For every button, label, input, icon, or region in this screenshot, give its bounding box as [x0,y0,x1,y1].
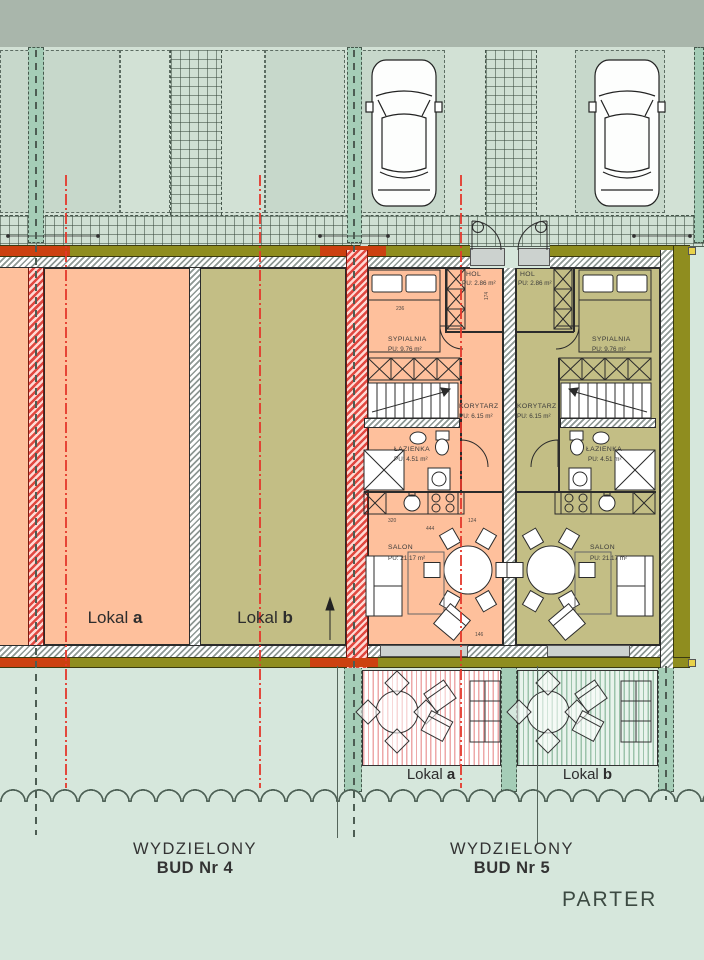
parking-stall [575,50,665,213]
party-wall-bud4-bud5 [346,250,368,668]
bud5-caption: WYDZIELONY BUD Nr 5 [432,840,592,878]
axis-line-red [259,175,261,788]
parking-aisle [120,50,170,213]
room-area-korytarz-a: PU: 6.15 m² [459,413,493,420]
bud4-caption-line1: WYDZIELONY [115,840,275,859]
bud4-lokal-b-label: Lokal b [210,608,320,628]
bud4-wall-hatch [0,257,350,268]
wall [445,331,503,333]
room-label-salon-b: SALON [590,544,615,551]
reference-line [537,666,538,843]
room-label-salon-a: SALON [388,544,413,551]
bud4-caption-line2: BUD Nr 4 [115,859,275,878]
room-label-korytarz-a: KORYTARZ [459,403,499,410]
room-area-lazienka-a: PU: 4.51 m² [394,456,428,463]
bud5-rear-wall [360,657,690,668]
room-area-hol-a: PU: 2.86 m² [462,280,496,287]
bud4-unit-divider [190,268,200,645]
bud5-wall-right [660,250,673,668]
paved-path [170,50,222,215]
page-title: PARTER [562,888,657,912]
boundary-dashed-line [353,50,355,838]
paved-path [485,50,537,215]
pergola-post [694,47,704,243]
room-area-sypialnia-b: PU: 9.76 m² [592,346,626,353]
terrace-window [547,645,630,657]
bud5-party-wall [503,268,516,645]
bud5-caption-line2: BUD Nr 5 [432,859,592,878]
bud5-lokal-a-floor [368,268,503,645]
room-area-sypialnia-a: PU: 9.76 m² [388,346,422,353]
bud4-floor-sliver [0,268,28,645]
dimension-label: 444 [426,526,434,532]
axis-line-red [65,175,67,788]
room-area-salon-a: PU: 21.17 m² [388,555,425,562]
parking-stall [358,50,445,213]
survey-point [688,659,696,667]
room-area-korytarz-b: PU: 6.15 m² [517,413,551,420]
terrace-lokal-b-label: Lokal b [520,766,655,783]
room-area-lazienka-b: PU: 4.51 m² [588,456,622,463]
dimension-label: 124 [468,518,476,524]
room-label-hol-b: HOL [520,271,535,278]
terrace-deck-b [517,670,658,766]
pergola-post [347,47,362,243]
room-area-hol-b: PU: 2.86 m² [518,280,552,287]
room-label-sypialnia-b: SYPIALNIA [592,336,631,343]
wall [516,331,574,333]
bud5-wall-hatch [368,257,470,268]
terrace-window [380,645,468,657]
survey-point [688,247,696,255]
room-label-korytarz-b: KORYTARZ [517,403,557,410]
boundary-dashed-line [35,50,37,835]
wall [364,491,503,493]
boundary-dashed-line [665,666,667,800]
street-band [0,0,704,48]
floor-plan-drawing: Lokal a Lokal b HOL PU: 2.86 m² SYPIALNI… [0,0,704,960]
dimension-label: 236 [396,306,404,312]
room-label-lazienka-b: ŁAZIENKA [586,446,622,453]
parking-stall [0,50,120,213]
wall [573,268,575,332]
wall [445,268,447,332]
wall-hatch [364,418,460,428]
dimension-label: 174 [484,292,490,300]
room-area-salon-b: PU: 21.17 m² [590,555,627,562]
terrace-deck-a [362,670,501,766]
bud4-lokal-a-label: Lokal a [60,608,170,628]
entry-threshold [518,248,550,266]
terrace-lokal-a-label: Lokal a [366,766,496,783]
dimension-label: 320 [388,518,396,524]
room-label-sypialnia-a: SYPIALNIA [388,336,427,343]
reference-line [337,666,338,838]
entry-threshold [470,248,505,266]
wall-hatch [560,418,656,428]
dimension-label: 146 [475,632,483,638]
terrace-post [501,666,517,792]
bud5-outer-wall-right [673,245,690,668]
room-label-lazienka-a: ŁAZIENKA [394,446,430,453]
axis-line-red [460,175,462,788]
bud4-caption: WYDZIELONY BUD Nr 4 [115,840,275,878]
room-label-hol-a: HOL [466,271,481,278]
bud4-wall-hatch-bottom [0,645,350,657]
wall [516,491,656,493]
parking-stall [265,50,345,213]
bud5-caption-line1: WYDZIELONY [432,840,592,859]
hedge-line [0,786,704,802]
bud4-lokal-b-floor [200,268,346,645]
